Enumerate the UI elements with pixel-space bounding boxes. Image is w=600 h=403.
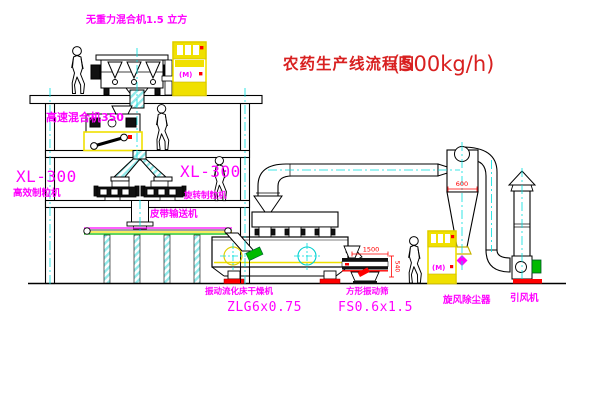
- diagram-canvas: (M): [0, 0, 600, 403]
- elevator-right-mark: (M): [432, 264, 445, 272]
- label-high-speed-mixer: 高速混合机350: [46, 110, 124, 124]
- label-fan: 引风机: [510, 292, 539, 304]
- exhaust-funnel: [254, 196, 282, 212]
- elevator-top-mark: (M): [179, 71, 192, 79]
- fan-base: [513, 279, 542, 284]
- label-belt-conveyor: 皮带输送机: [149, 208, 198, 220]
- bucket-elevator-top: (M): [173, 42, 206, 96]
- indicator-dot: [451, 235, 454, 238]
- conveyor-leg: [164, 235, 170, 283]
- label-sieve-name: 方形振动筛: [346, 286, 389, 297]
- induced-draft-fan: [512, 256, 542, 284]
- dim-sieve-1500: 1500: [363, 246, 380, 254]
- label-granulator-left-name: 高效制粒机: [13, 187, 61, 199]
- conveyor-leg: [104, 235, 110, 283]
- exhaust-duct: [258, 164, 438, 196]
- label-cyclone: 旋风除尘器: [442, 294, 491, 306]
- person-second-floor: [156, 105, 168, 150]
- indicator-dot: [199, 72, 202, 75]
- granulator-right: [141, 181, 186, 201]
- belt-conveyor: [84, 228, 232, 283]
- page-title-capacity: (500kg/h): [392, 52, 494, 76]
- conveyor-leg: [194, 235, 200, 283]
- conveyor-leg: [134, 235, 140, 283]
- building-slab-top: [30, 96, 262, 104]
- fan-motor: [532, 260, 541, 273]
- person-top-floor: [72, 47, 85, 94]
- indicator-dot: [450, 265, 453, 268]
- label-gravity-mixer: 无重力混合机1.5 立方: [85, 13, 187, 26]
- fan-inlet-elbow: [486, 250, 510, 272]
- dim-sieve-540: 540: [394, 261, 401, 273]
- label-dryer-model: ZLG6x0.75: [227, 300, 302, 315]
- label-dryer-name: 振动流化床干燥机: [205, 286, 274, 297]
- dim-cyclone-600: 600: [456, 180, 468, 188]
- label-sieve-model: FS0.6x1.5: [338, 300, 413, 315]
- bucket-elevator-right: (M): [428, 231, 456, 284]
- label-granulator-right-model: XL-300: [180, 162, 241, 181]
- label-granulator-right-name: 旋转制粒机: [183, 190, 227, 201]
- granulator-left: [94, 181, 139, 201]
- label-granulator-left-model: XL-300: [16, 167, 77, 186]
- cad-process-flow-diagram: (M): [0, 0, 600, 403]
- indicator-dot: [200, 46, 203, 49]
- person-ground: [409, 237, 422, 283]
